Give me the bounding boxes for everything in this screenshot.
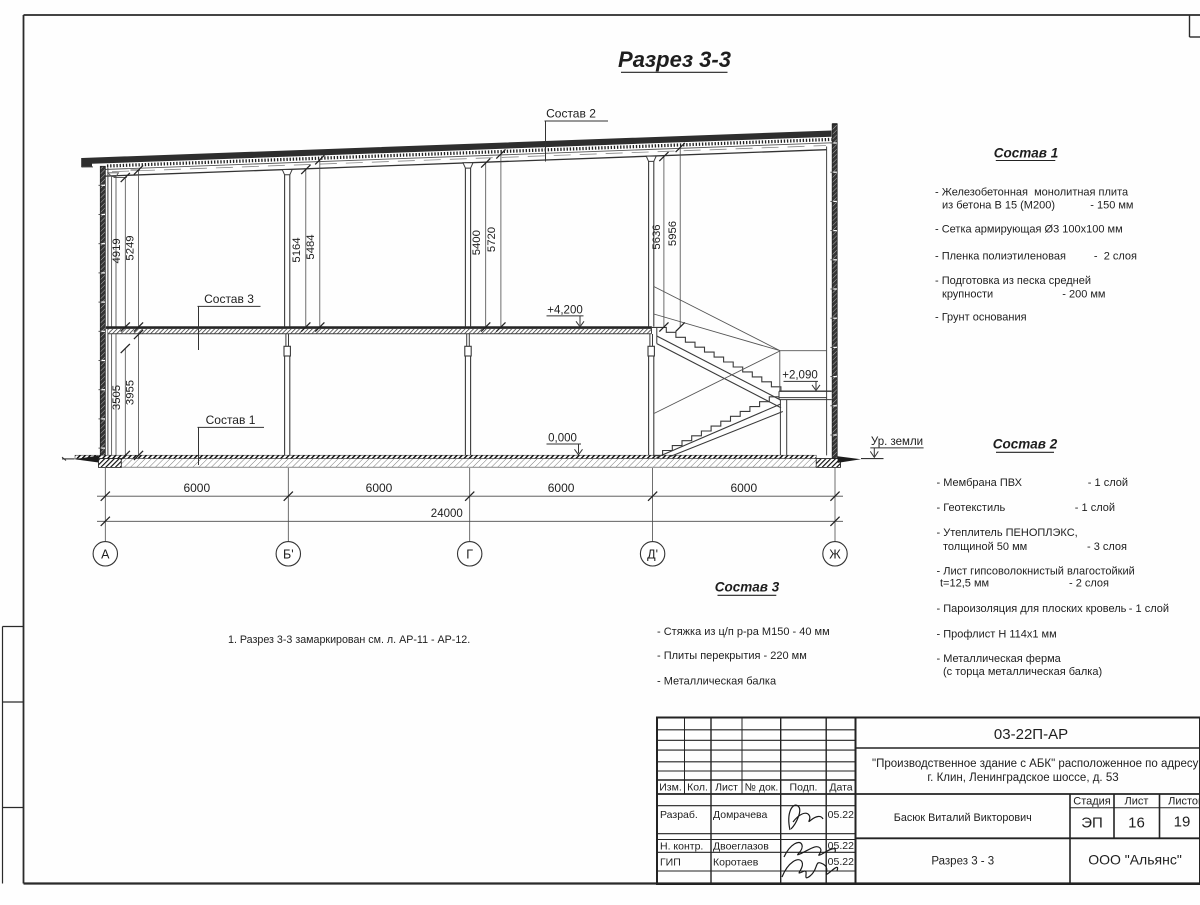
svg-text:5249: 5249	[125, 235, 137, 260]
svg-text:5484: 5484	[305, 234, 317, 259]
svg-text:Стадия: Стадия	[1073, 795, 1111, 807]
svg-text:5956: 5956	[667, 221, 679, 246]
svg-text:16: 16	[1128, 815, 1145, 832]
svg-text:t=12,5 мм: t=12,5 мм	[940, 578, 989, 590]
svg-text:Г: Г	[466, 547, 473, 561]
svg-text:Б': Б'	[283, 547, 294, 561]
svg-text:- 1 слой: - 1 слой	[1129, 603, 1169, 615]
svg-text:Кол.: Кол.	[687, 782, 708, 794]
svg-text:Д': Д'	[647, 547, 658, 561]
svg-text:Двоеглазов: Двоеглазов	[713, 840, 769, 852]
svg-text:- 3 слоя: - 3 слоя	[1087, 541, 1127, 553]
svg-text:Лист: Лист	[715, 782, 738, 794]
svg-text:Изм.: Изм.	[659, 782, 682, 794]
svg-text:Домрачева: Домрачева	[713, 809, 768, 821]
svg-text:- Мембрана ПВХ: - Мембрана ПВХ	[937, 477, 1023, 489]
svg-text:Ж: Ж	[829, 547, 841, 561]
svg-text:г. Клин, Ленинградское шоссе,: г. Клин, Ленинградское шоссе, д. 53	[927, 772, 1118, 784]
svg-text:ЭП: ЭП	[1081, 815, 1103, 832]
svg-text:Состав 2: Состав 2	[546, 107, 596, 121]
svg-text:Коротаев: Коротаев	[713, 856, 759, 868]
svg-text:Состав 1: Состав 1	[994, 146, 1058, 161]
svg-text:из бетона В 15 (М200): из бетона В 15 (М200)	[942, 200, 1055, 212]
svg-text:Разрез 3 - 3: Разрез 3 - 3	[931, 856, 994, 868]
svg-text:Состав 3: Состав 3	[715, 580, 780, 595]
svg-text:19: 19	[1174, 814, 1191, 831]
svg-text:6000: 6000	[183, 481, 210, 495]
svg-text:- Металлическая ферма: - Металлическая ферма	[937, 653, 1062, 665]
svg-text:- Лист гипсоволокнистый влагос: - Лист гипсоволокнистый влагостойкий	[937, 566, 1135, 578]
svg-text:- Плиты перекрытия - 220 мм: - Плиты перекрытия - 220 мм	[657, 650, 807, 662]
svg-text:Басюк Виталий Викторович: Басюк Виталий Викторович	[894, 812, 1032, 824]
svg-text:5164: 5164	[291, 237, 303, 262]
svg-text:Состав 1: Состав 1	[206, 413, 256, 427]
svg-text:- Профлист Н 114х1 мм: - Профлист Н 114х1 мм	[937, 629, 1057, 641]
svg-text:Дата: Дата	[829, 782, 852, 794]
svg-text:Разрез 3-3: Разрез 3-3	[618, 47, 731, 72]
svg-text:А: А	[101, 547, 110, 561]
svg-text:- 1 слой: - 1 слой	[1075, 502, 1115, 514]
svg-text:№ док.: № док.	[745, 782, 779, 794]
svg-text:5720: 5720	[486, 227, 498, 252]
svg-text:Н. контр.: Н. контр.	[660, 840, 703, 852]
svg-text:5636: 5636	[651, 224, 663, 249]
svg-text:Разраб.: Разраб.	[660, 809, 698, 821]
svg-text:- 2 слоя: - 2 слоя	[1094, 251, 1137, 263]
svg-text:05.22: 05.22	[828, 809, 854, 821]
svg-text:- Пленка полиэтиленовая: - Пленка полиэтиленовая	[935, 251, 1066, 263]
svg-text:3955: 3955	[125, 380, 137, 405]
svg-text:0,000: 0,000	[548, 433, 577, 445]
svg-text:- 2 слоя: - 2 слоя	[1069, 578, 1109, 590]
svg-text:- Утеплитель ПЕНОПЛЭКС,: - Утеплитель ПЕНОПЛЭКС,	[937, 527, 1078, 539]
svg-text:05.22: 05.22	[828, 840, 854, 852]
svg-text:- Металлическая балка: - Металлическая балка	[657, 676, 777, 688]
svg-text:"Производственное здание с АБК: "Производственное здание с АБК" располож…	[872, 758, 1200, 770]
svg-text:ООО "Альянс": ООО "Альянс"	[1088, 852, 1182, 868]
svg-text:ГИП: ГИП	[660, 856, 681, 868]
svg-text:24000: 24000	[431, 508, 463, 520]
svg-text:- Сетка армирующая Ø3 100х100: - Сетка армирующая Ø3 100х100 мм	[935, 224, 1123, 236]
svg-text:6000: 6000	[548, 481, 575, 495]
svg-text:Подп.: Подп.	[790, 782, 818, 794]
svg-text:- Стяжка из ц/п р-ра М150 - 40: - Стяжка из ц/п р-ра М150 - 40 мм	[657, 626, 830, 638]
svg-text:Ур. земли: Ур. земли	[871, 436, 923, 448]
svg-text:1. Разрез 3-3 замаркирован см.: 1. Разрез 3-3 замаркирован см. л. АР-11 …	[228, 634, 470, 646]
svg-text:крупности: крупности	[942, 289, 993, 301]
svg-text:толщиной 50 мм: толщиной 50 мм	[943, 541, 1027, 553]
svg-text:+4,200: +4,200	[547, 305, 583, 317]
svg-text:03-22П-АР: 03-22П-АР	[994, 726, 1068, 743]
svg-text:6000: 6000	[730, 481, 757, 495]
svg-text:05.22: 05.22	[828, 856, 854, 868]
svg-text:6000: 6000	[366, 481, 393, 495]
svg-text:- Геотекстиль: - Геотекстиль	[937, 502, 1006, 514]
svg-text:- Пароизоляция для плоских кро: - Пароизоляция для плоских кровель	[937, 603, 1127, 615]
svg-text:4919: 4919	[111, 238, 123, 263]
svg-text:3505: 3505	[111, 385, 123, 410]
svg-text:- Подготовка из песка средней: - Подготовка из песка средней	[935, 275, 1091, 287]
svg-text:+2,090: +2,090	[782, 370, 818, 382]
svg-text:Состав 3: Состав 3	[204, 292, 254, 306]
svg-text:- 150 мм: - 150 мм	[1090, 200, 1133, 212]
svg-text:- Железобетонная монолитная п: - Железобетонная монолитная плита	[935, 187, 1129, 199]
svg-text:(с торца металлическая балка): (с торца металлическая балка)	[943, 666, 1102, 678]
svg-text:Лист: Лист	[1125, 795, 1149, 807]
svg-text:- Грунт основания: - Грунт основания	[935, 312, 1027, 324]
svg-text:- 1 слой: - 1 слой	[1088, 477, 1128, 489]
svg-text:Листов: Листов	[1168, 795, 1200, 807]
svg-text:5400: 5400	[471, 230, 483, 255]
svg-text:Состав 2: Состав 2	[993, 437, 1058, 452]
svg-text:- 200 мм: - 200 мм	[1062, 289, 1105, 301]
